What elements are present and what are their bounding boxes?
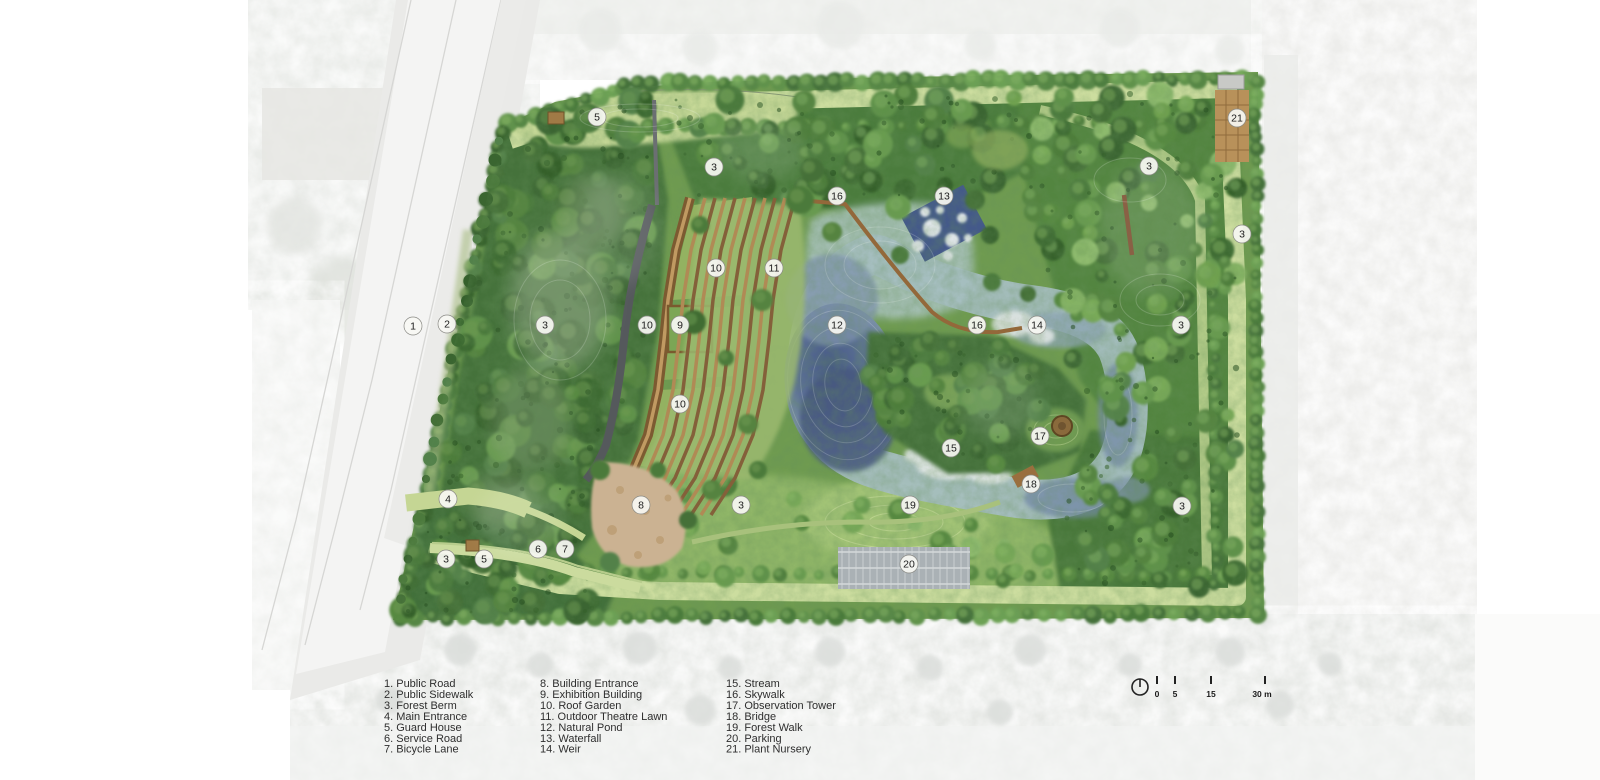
svg-text:3: 3	[1179, 501, 1185, 513]
svg-text:10: 10	[641, 320, 653, 332]
svg-text:9: 9	[677, 320, 683, 332]
svg-text:19: 19	[904, 500, 916, 512]
svg-text:11: 11	[769, 263, 780, 275]
svg-text:18: 18	[1025, 479, 1037, 491]
svg-text:3: 3	[1146, 161, 1152, 173]
svg-text:21: 21	[1231, 113, 1243, 125]
svg-text:16: 16	[831, 191, 843, 203]
svg-text:10: 10	[710, 263, 722, 275]
svg-text:3: 3	[711, 162, 717, 174]
svg-text:30 m: 30 m	[1252, 689, 1272, 699]
svg-text:5: 5	[1173, 689, 1178, 699]
svg-text:14. Weir: 14. Weir	[540, 744, 581, 756]
svg-text:5: 5	[481, 554, 487, 566]
svg-text:14: 14	[1031, 320, 1043, 332]
svg-text:3: 3	[542, 320, 548, 332]
svg-text:1: 1	[410, 321, 416, 333]
svg-text:13: 13	[938, 191, 950, 203]
svg-text:4: 4	[445, 494, 451, 506]
svg-text:15: 15	[1206, 689, 1216, 699]
svg-text:6: 6	[535, 544, 541, 556]
svg-text:12: 12	[831, 320, 843, 332]
svg-text:2: 2	[444, 319, 450, 331]
svg-text:8: 8	[638, 500, 644, 512]
svg-text:17: 17	[1034, 431, 1046, 443]
svg-text:16: 16	[971, 320, 983, 332]
svg-text:3: 3	[738, 500, 744, 512]
svg-text:3: 3	[1239, 229, 1245, 241]
svg-text:20: 20	[903, 559, 915, 571]
svg-text:15: 15	[945, 443, 957, 455]
svg-text:5: 5	[594, 112, 600, 124]
svg-text:10: 10	[674, 399, 686, 411]
svg-text:7. Bicycle Lane: 7. Bicycle Lane	[384, 744, 459, 756]
svg-text:21. Plant Nursery: 21. Plant Nursery	[726, 744, 811, 756]
svg-text:7: 7	[562, 544, 568, 556]
svg-text:3: 3	[443, 554, 449, 566]
svg-text:3: 3	[1178, 320, 1184, 332]
svg-text:0: 0	[1155, 689, 1160, 699]
